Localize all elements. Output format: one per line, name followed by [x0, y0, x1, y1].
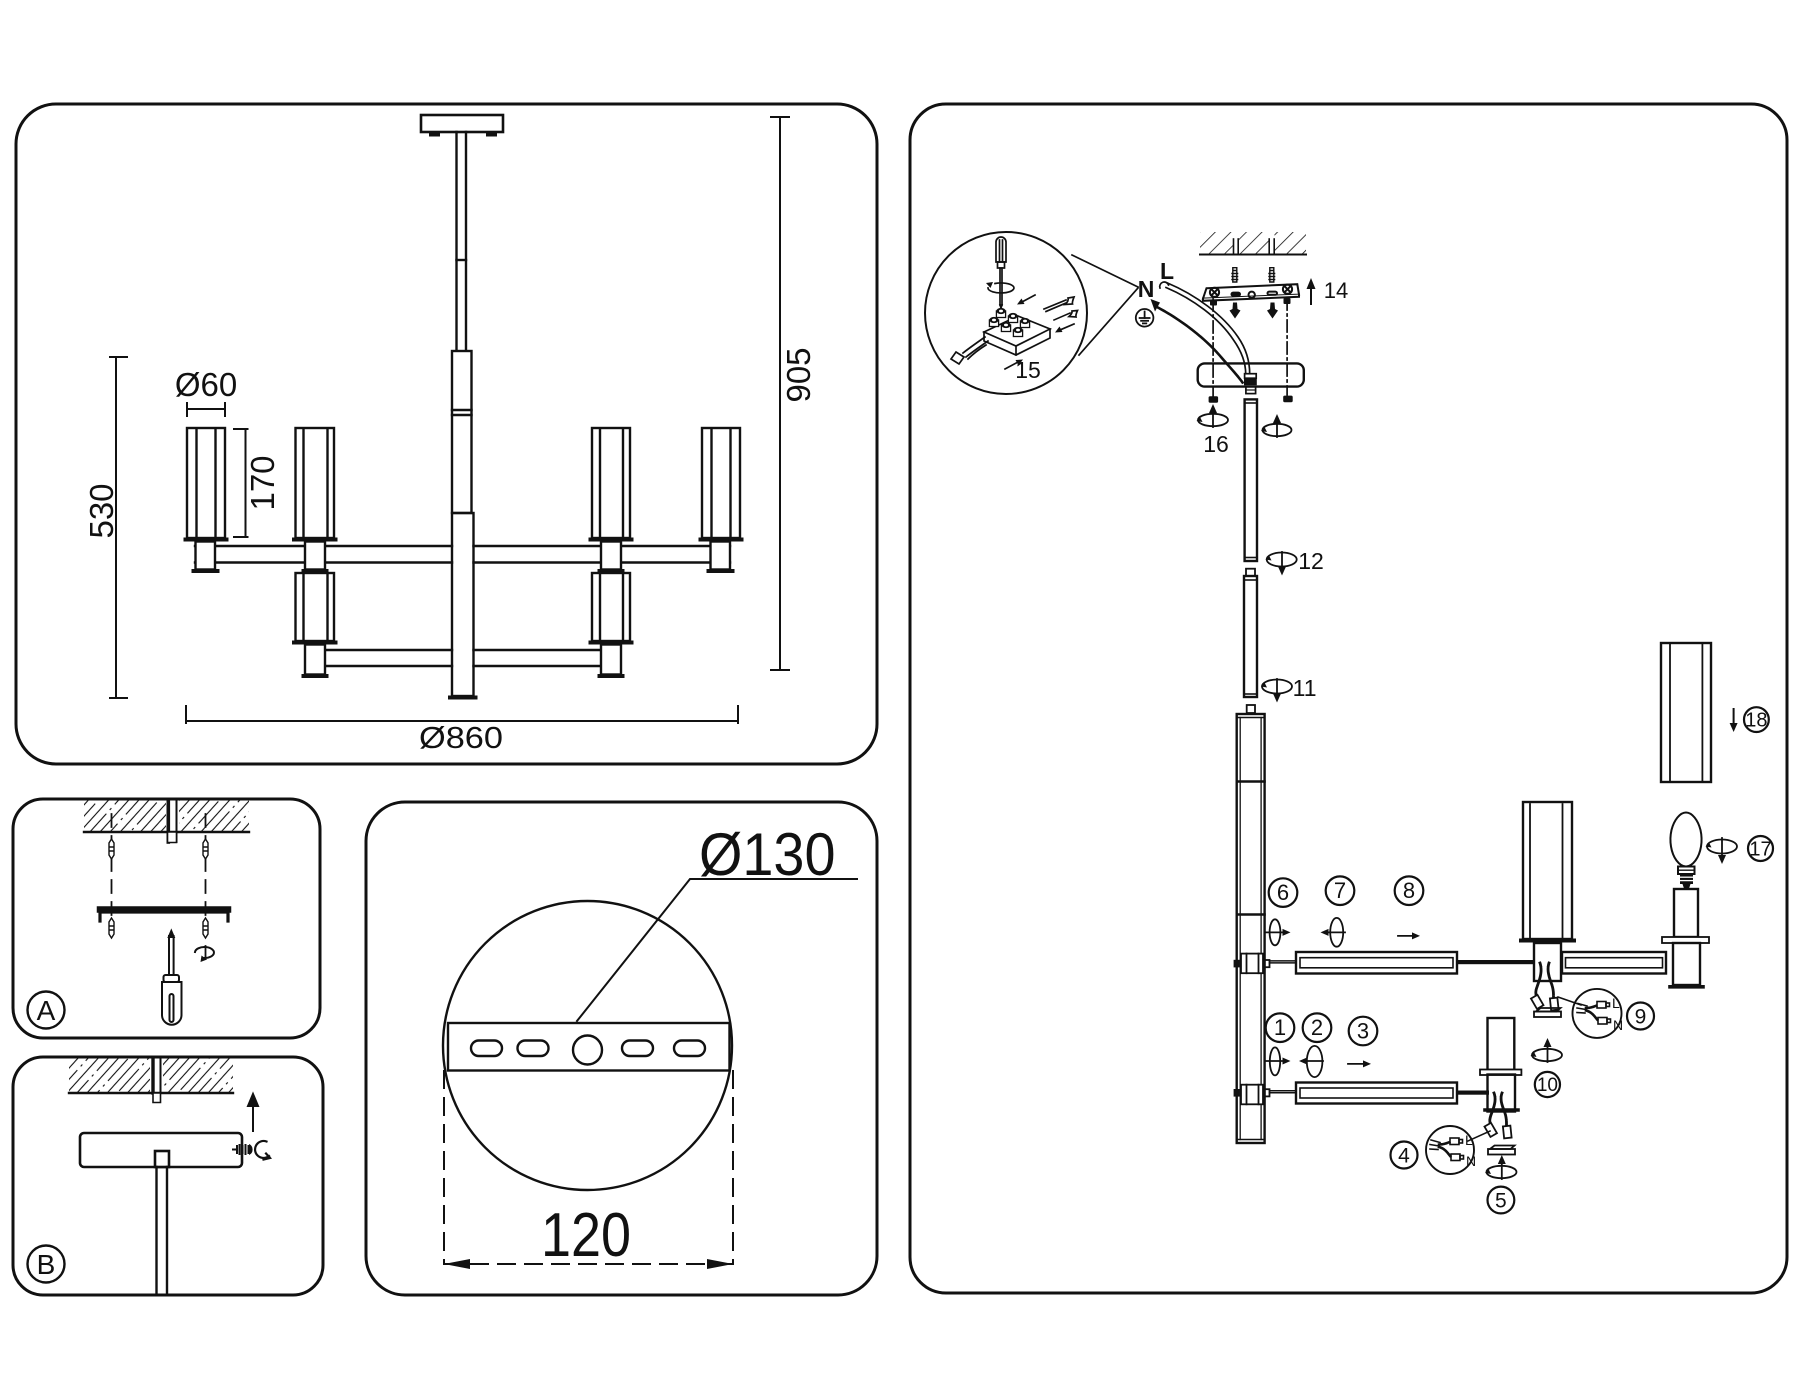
svg-text:530: 530 [83, 483, 120, 538]
svg-text:L: L [1465, 1132, 1473, 1148]
svg-text:7: 7 [1334, 878, 1346, 903]
svg-text:L: L [1160, 258, 1174, 284]
svg-text:18: 18 [1745, 710, 1767, 732]
svg-text:A: A [37, 995, 56, 1026]
svg-text:16: 16 [1203, 431, 1229, 457]
svg-text:B: B [37, 1249, 56, 1280]
svg-text:905: 905 [780, 347, 817, 402]
svg-text:5: 5 [1495, 1190, 1507, 1213]
svg-text:120: 120 [541, 1201, 631, 1270]
svg-text:N: N [1613, 1017, 1623, 1033]
svg-text:4: 4 [1398, 1145, 1410, 1168]
svg-text:15: 15 [1015, 357, 1041, 383]
svg-text:1: 1 [1274, 1015, 1286, 1040]
svg-text:Ø60: Ø60 [175, 366, 237, 403]
svg-text:14: 14 [1324, 278, 1348, 303]
svg-text:N: N [1138, 276, 1155, 302]
svg-text:6: 6 [1277, 880, 1289, 905]
svg-text:170: 170 [244, 455, 281, 510]
svg-text:10: 10 [1537, 1075, 1558, 1096]
svg-text:11: 11 [1293, 675, 1317, 701]
svg-text:2: 2 [1311, 1015, 1323, 1040]
svg-text:8: 8 [1403, 878, 1415, 903]
svg-text:3: 3 [1357, 1018, 1369, 1043]
svg-text:9: 9 [1635, 1006, 1647, 1029]
svg-text:17: 17 [1749, 839, 1771, 861]
svg-text:L: L [1612, 995, 1620, 1011]
svg-text:12: 12 [1298, 548, 1324, 574]
svg-text:Ø860: Ø860 [419, 720, 503, 755]
svg-text:N: N [1466, 1153, 1476, 1169]
